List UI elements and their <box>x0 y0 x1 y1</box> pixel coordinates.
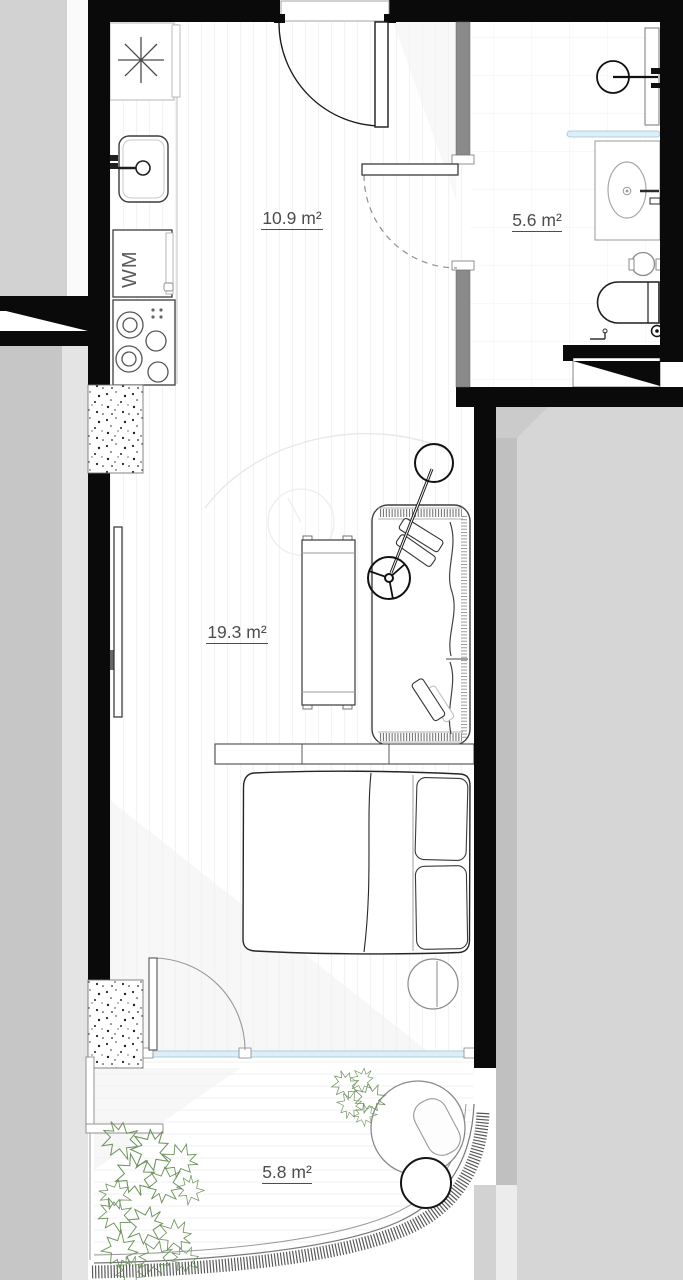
neighbor-mass-right <box>474 407 683 1280</box>
window-sill-detail-left <box>0 296 88 346</box>
floor-plan-canvas: WM <box>0 0 683 1280</box>
bed-pillow <box>415 866 467 950</box>
label-balcony-area: 5.8 m² <box>262 1162 312 1182</box>
bathroom-window-detail <box>573 358 660 387</box>
bed-pillow <box>415 777 468 860</box>
wm-door-handle <box>164 283 173 291</box>
wall-left-mid <box>88 473 110 980</box>
door-leaf <box>362 164 458 175</box>
toilet-cistern <box>632 253 655 276</box>
door-jamb <box>452 155 474 164</box>
sofa <box>372 505 470 745</box>
wall-living-right <box>474 390 496 1068</box>
door-leaf <box>375 22 388 127</box>
vanity-counter <box>595 141 660 240</box>
concrete-column-upper <box>88 385 143 473</box>
washing-machine: WM <box>113 230 173 297</box>
freezer-cabinet <box>110 23 180 100</box>
bedside-table <box>408 959 458 1009</box>
shower-screen-glass <box>567 131 660 137</box>
wall-top-right <box>389 0 683 22</box>
floor-plan-drawing: WM <box>0 0 683 1280</box>
balcony-side-table <box>401 1158 451 1208</box>
door-threshold <box>281 1 389 21</box>
label-living-area: 19.3 m² <box>207 622 266 642</box>
wall-top-left <box>88 0 280 22</box>
neighbor-mass-top-left <box>0 0 88 1280</box>
kitchen-sink <box>110 136 168 202</box>
door-leaf <box>149 958 157 1050</box>
washing-machine-label: WM <box>119 250 141 288</box>
door-jamb <box>452 261 474 270</box>
cooktop <box>113 300 175 385</box>
toilet-icon <box>597 282 659 323</box>
wall-left-upper <box>88 0 110 385</box>
concrete-column-lower <box>88 980 143 1068</box>
label-kitchen-area: 10.9 m² <box>262 208 321 228</box>
coffee-table <box>302 536 355 709</box>
bed <box>243 771 470 954</box>
label-bathroom-area: 5.6 m² <box>512 210 562 230</box>
console-shelf <box>215 744 474 764</box>
wall-bathroom-right <box>660 0 683 362</box>
